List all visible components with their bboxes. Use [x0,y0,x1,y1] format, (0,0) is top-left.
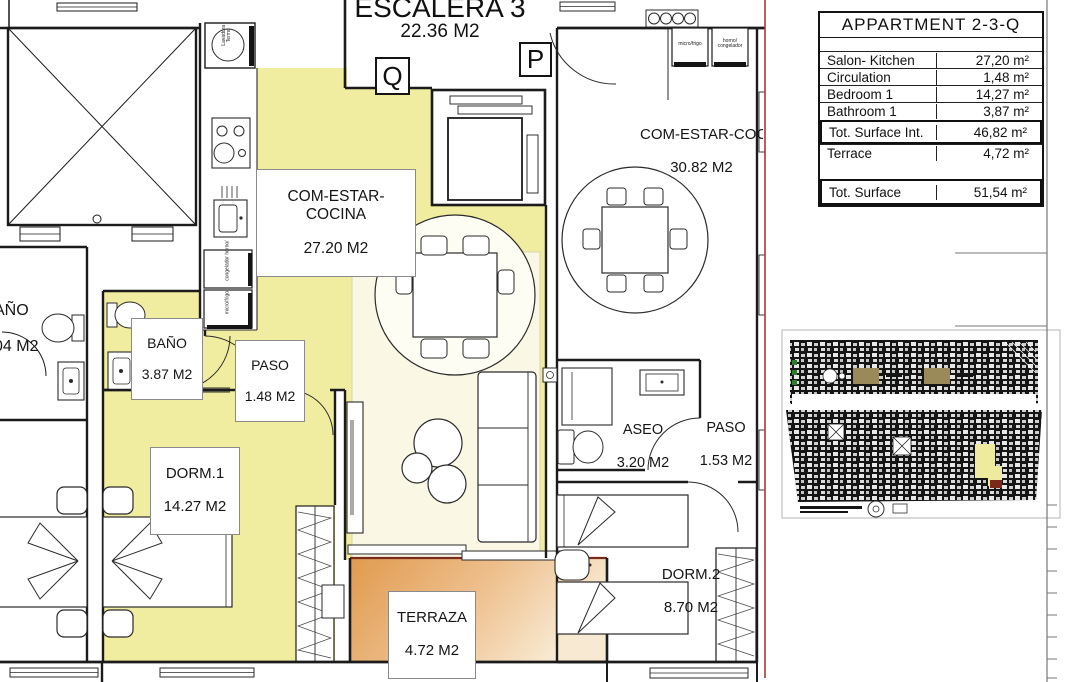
row-label: Terrace [820,146,936,161]
table-row: Bathroom 1 3,87 m² [820,102,1042,119]
room-area: 30.82 M2 [640,160,763,177]
table-row: Terrace 4,72 m² [820,144,1042,161]
room-label-terrace: TERRAZA 4.72 M2 [388,591,476,679]
row-value: 51,54 m² [936,185,1040,200]
row-label: Circulation [820,70,936,85]
room-name: COM-ESTAR-COC [640,127,763,144]
row-value: 46,82 m² [936,125,1040,140]
room-name: PASO [239,358,301,374]
room-area: 1.48 M2 [239,389,301,405]
room-name: AÑO [0,302,50,320]
floor-plan-sheet: ESCALERA 3 22.36 M2 Q P COM-ESTAR-COCINA… [0,0,1070,682]
room-label-paso2: PASO 1.53 M2 [696,404,756,485]
room-label-dorm1: DORM.1 14.27 M2 [150,447,240,535]
block-marker-p: P [519,42,552,77]
room-area: 04 M2 [0,338,50,356]
room-area: 4.72 M2 [392,643,472,660]
area-summary-table: APPARTMENT 2-3-Q Salon- Kitchen 27,20 m²… [818,11,1044,207]
oven-freezer-right-label: horno/ congelador [713,39,747,50]
table-title: APPARTMENT 2-3-Q [820,13,1042,38]
table-row-total-interior: Tot. Surface Int. 46,82 m² [820,120,1042,144]
bottom-walls [0,662,350,682]
block-marker-q-letter: Q [382,61,402,92]
room-label-salon: COM-ESTAR-COCINA 27.20 M2 [256,169,416,277]
block-marker-q: Q [375,57,410,95]
room-area: 14.27 M2 [154,499,236,516]
room-name: TERRAZA [392,610,472,627]
room-label-dorm2: DORM.2 8.70 M2 [645,550,737,634]
room-name: PASO [696,420,756,436]
room-label-aseo: ASEO 3.20 M2 [610,406,676,487]
table-spacer-row [820,38,1042,51]
table-row: Circulation 1,48 m² [820,68,1042,85]
room-name: DORM.2 [645,567,737,584]
site-plan-thumbnail [782,330,1060,518]
row-value: 14,27 m² [936,87,1042,102]
room-name: ASEO [610,422,676,438]
row-value: 4,72 m² [936,146,1042,161]
row-value: 3,87 m² [936,104,1042,119]
row-label: Salon- Kitchen [820,53,936,68]
table-spacer-row [820,161,1042,179]
oven-freezer-left-label: congelador horno/ [225,240,230,282]
room-name: BAÑO [135,336,199,352]
room-area: 1.53 M2 [696,453,756,469]
room-area: 27.20 M2 [260,240,412,257]
table-row-total: Tot. Surface 51,54 m² [820,179,1042,205]
room-label-neighbor-bath: AÑO 04 M2 [0,284,50,374]
table-row: Salon- Kitchen 27,20 m² [820,51,1042,68]
fridge-micro-right-label: micro/frigo [673,42,707,47]
stairwell-area: 22.36 M2 [380,21,500,43]
room-name: DORM.1 [154,466,236,483]
table-row: Bedroom 1 14,27 m² [820,85,1042,102]
row-value: 27,20 m² [936,53,1042,68]
room-area: 3.87 M2 [135,367,199,383]
fridge-micro-left-label: micro/frigo [225,282,230,324]
row-value: 1,48 m² [936,70,1042,85]
row-label: Bedroom 1 [820,87,936,102]
room-name: COM-ESTAR-COCINA [260,188,412,223]
room-area: 8.70 M2 [645,600,737,617]
room-label-salon2: COM-ESTAR-COC 30.82 M2 [640,110,763,194]
room-label-paso1: PASO 1.48 M2 [235,340,305,422]
row-label: Bathroom 1 [820,104,936,119]
washer-label: Lavadora Termo [222,18,233,52]
room-area: 3.20 M2 [610,455,676,471]
row-label: Tot. Surface Int. [822,125,936,140]
row-label: Tot. Surface [822,185,936,200]
room-label-bath: BAÑO 3.87 M2 [131,318,203,400]
block-marker-p-letter: P [527,44,544,75]
